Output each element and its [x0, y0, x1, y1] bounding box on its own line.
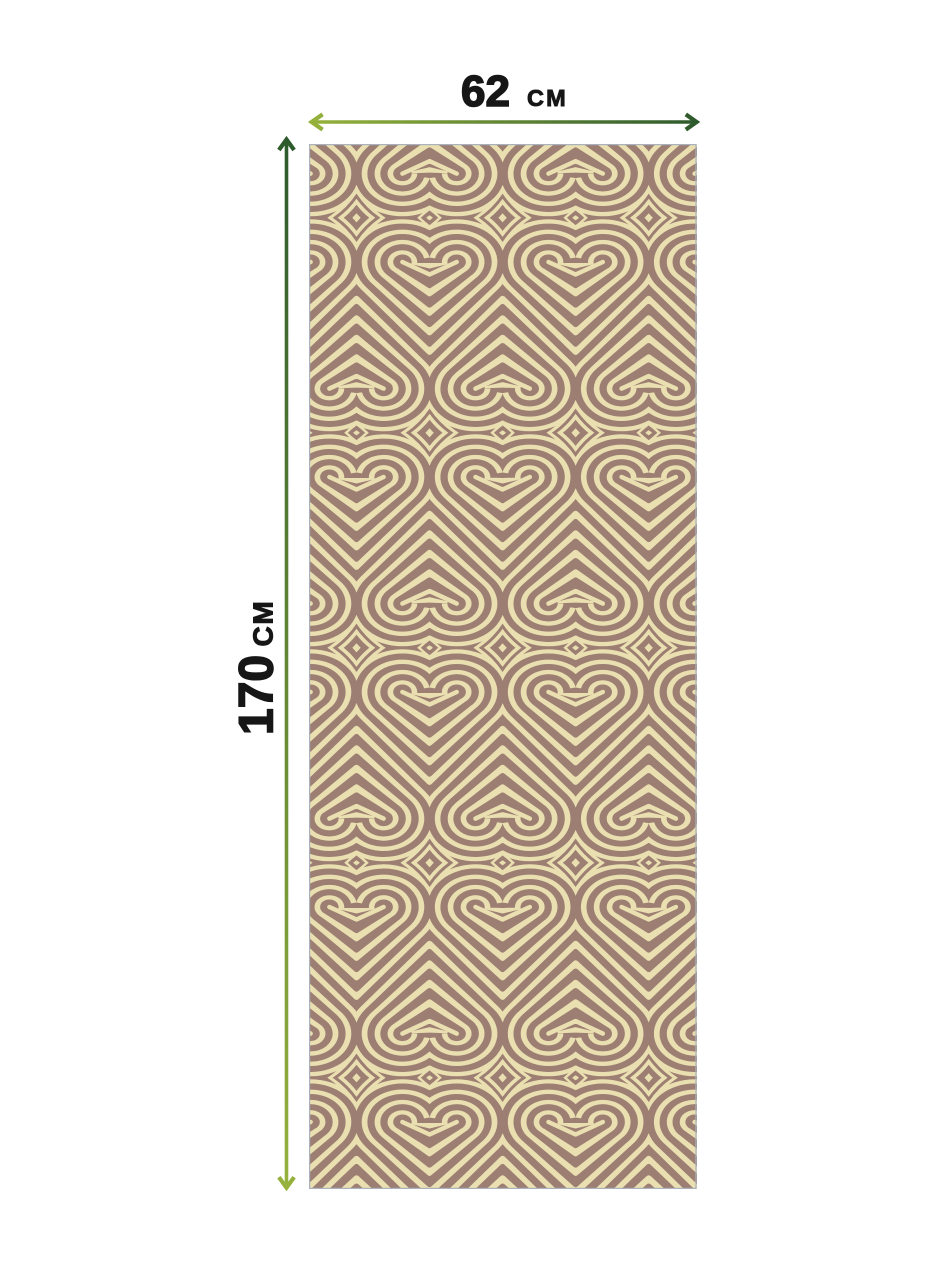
svg-text:170: 170	[231, 655, 284, 735]
svg-text:СМ: СМ	[527, 85, 568, 111]
svg-text:62: 62	[461, 67, 510, 116]
svg-text:СМ: СМ	[248, 599, 279, 646]
